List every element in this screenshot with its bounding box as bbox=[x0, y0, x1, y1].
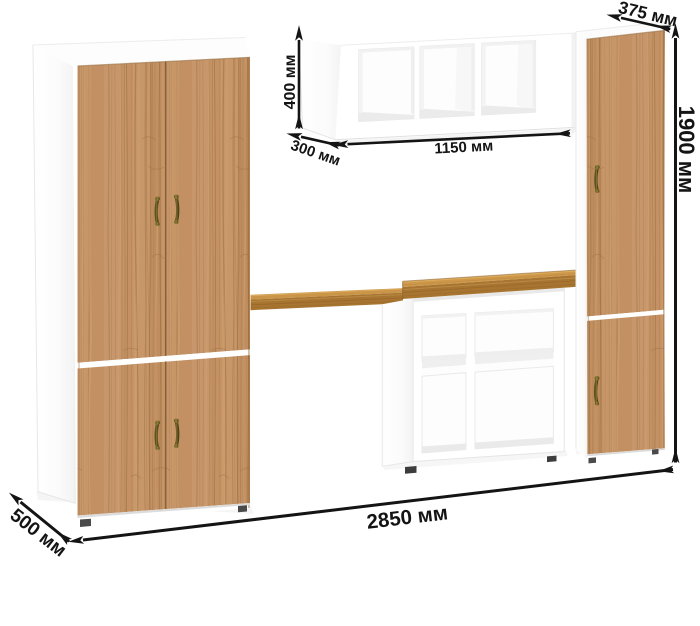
svg-text:400 мм: 400 мм bbox=[282, 55, 299, 110]
svg-text:1900 мм: 1900 мм bbox=[674, 106, 699, 194]
svg-text:1150 мм: 1150 мм bbox=[434, 137, 494, 157]
